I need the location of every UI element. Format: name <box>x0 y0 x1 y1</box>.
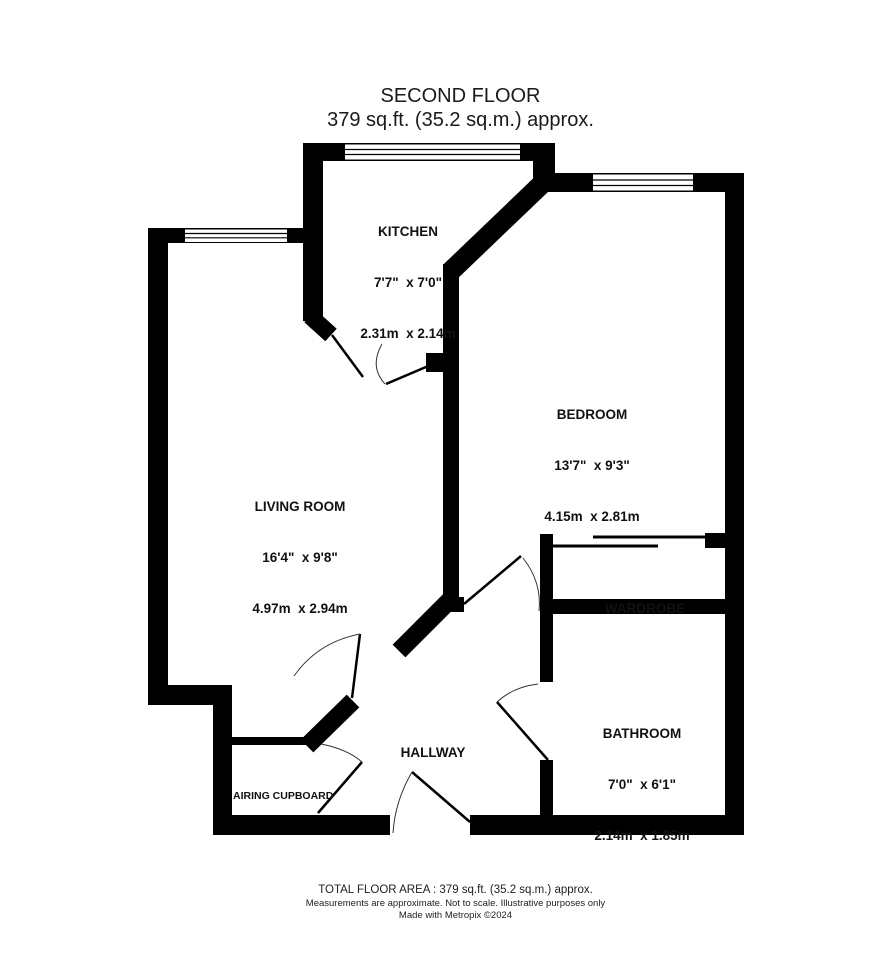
room-name: WARDROBE <box>605 600 685 617</box>
room-name: LIVING ROOM <box>252 498 347 515</box>
wall-bathroom-left-upper <box>540 614 553 682</box>
window-kitchen-glass <box>345 145 520 160</box>
room-name: BEDROOM <box>544 406 639 423</box>
wall-bathroom-left-lower <box>540 760 553 815</box>
footer-disclaimer: Measurements are approximate. Not to sca… <box>25 898 886 910</box>
wall-bedroom-bottomright-block <box>705 533 744 548</box>
room-name: BATHROOM <box>594 725 689 742</box>
room-dim-metric: 4.15m x 2.81m <box>544 508 639 525</box>
floorplan-page: SECOND FLOOR 379 sq.ft. (35.2 sq.m.) app… <box>0 0 886 974</box>
room-dim-imperial: 7'7" x 7'0" <box>360 274 455 291</box>
plan-footer: TOTAL FLOOR AREA : 379 sq.ft. (35.2 sq.m… <box>25 883 886 922</box>
room-dim-metric: 2.14m x 1.85m <box>594 827 689 844</box>
room-label-living-room: LIVING ROOM 16'4" x 9'8" 4.97m x 2.94m <box>252 464 347 651</box>
wall-right <box>725 173 744 835</box>
window-livingroom <box>185 230 287 243</box>
door-kitchen-leaf <box>332 335 363 377</box>
window-bedroom-glass <box>593 175 693 191</box>
door-bathroom-arc <box>497 684 538 702</box>
wall-kitchen-door-jamb <box>310 316 331 335</box>
door-airing-cupboard-arc <box>321 744 362 762</box>
window-kitchen <box>345 145 520 160</box>
wall-diagonal-kitchen-bedroom <box>451 180 546 271</box>
room-name: AIRING CUPBOARD <box>233 790 363 803</box>
wall-diagonal-hallway <box>399 595 455 651</box>
room-dim-metric: 2.31m x 2.14m <box>360 325 455 342</box>
room-name: HALLWAY <box>401 744 466 761</box>
room-label-bathroom: BATHROOM 7'0" x 6'1" 2.14m x 1.85m <box>594 691 689 878</box>
room-dim-imperial: 13'7" x 9'3" <box>544 457 639 474</box>
room-name: KITCHEN <box>360 223 455 240</box>
room-dim-imperial: 7'0" x 6'1" <box>594 776 689 793</box>
room-label-kitchen: KITCHEN 7'7" x 7'0" 2.31m x 2.14m <box>360 189 455 376</box>
footer-total-area: TOTAL FLOOR AREA : 379 sq.ft. (35.2 sq.m… <box>25 883 886 898</box>
door-bathroom-leaf <box>497 702 548 760</box>
room-dim-metric: 4.97m x 2.94m <box>252 600 347 617</box>
floor-plan-svg <box>0 0 886 974</box>
door-bedroom-hall-leaf <box>464 556 521 604</box>
window-bedroom <box>593 175 693 191</box>
wall-left <box>148 228 168 705</box>
door-bedroom-hall-arc <box>523 558 539 611</box>
wall-left-lower <box>213 685 232 835</box>
wall-diagonal-livingroom-door-jamb <box>307 701 353 746</box>
room-label-wardrobe: WARDROBE <box>605 566 685 651</box>
room-label-hallway: HALLWAY <box>401 710 466 795</box>
window-livingroom-glass <box>185 230 287 243</box>
room-label-airing-cupboard: AIRING CUPBOARD <box>233 764 363 829</box>
room-label-bedroom: BEDROOM 13'7" x 9'3" 4.15m x 2.81m <box>544 372 639 559</box>
room-dim-imperial: 16'4" x 9'8" <box>252 549 347 566</box>
door-livingroom-leaf <box>352 634 360 698</box>
footer-credit: Made with Metropix ©2024 <box>25 910 886 922</box>
wall-airing-cupboard-top <box>232 737 310 745</box>
